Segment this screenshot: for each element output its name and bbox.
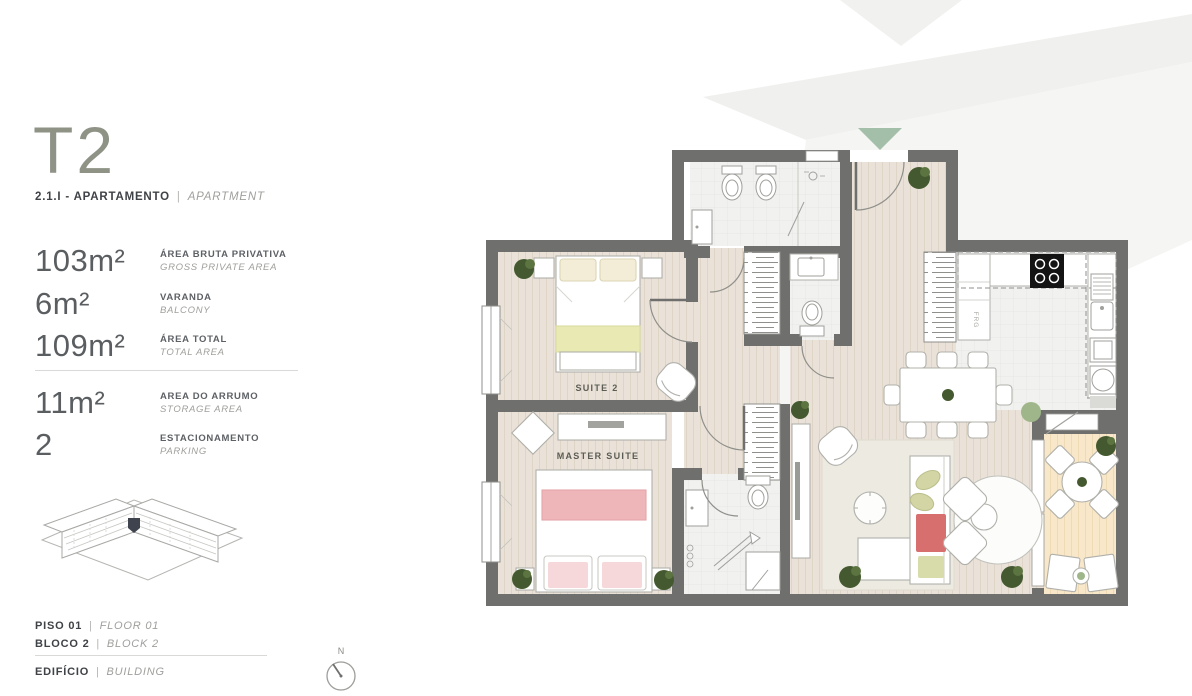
block-pt: BLOCO 2: [35, 638, 90, 650]
compass-needle: [333, 664, 341, 676]
spec-label-en: GROSS PRIVATE AREA: [160, 262, 287, 273]
nightstand: [534, 258, 554, 278]
entrance-arrow-icon: [858, 128, 902, 150]
pillow-pink: [602, 562, 642, 588]
bathroom2-basin: [798, 258, 824, 276]
chaise: [858, 538, 912, 580]
fridge-label: FRG: [972, 312, 979, 329]
brochure-page: { "colors": { "wall": "#6f6f6e", "wood_f…: [0, 0, 1192, 696]
dining-chair: [937, 422, 957, 438]
wardrobe-corridor-upper: [744, 252, 780, 334]
dining-chair: [906, 352, 926, 368]
storage-closet: [746, 552, 780, 590]
bathroom1-sink: [692, 210, 712, 244]
floor-separator: |: [86, 620, 96, 632]
spec-label-pt: ÁREA TOTAL: [160, 334, 227, 345]
spec-parking: 2 ESTACIONAMENTO PARKING: [35, 430, 335, 460]
kitchen-end-panel: [1090, 396, 1116, 408]
spec-value: 2: [35, 430, 160, 460]
dining-chair: [884, 385, 900, 405]
dining-chair: [937, 352, 957, 368]
spec-label-pt: VARANDA: [160, 292, 212, 303]
wardrobe-hall: [924, 252, 956, 342]
dining-chair: [906, 422, 926, 438]
bidet: [722, 166, 742, 200]
spec-label-pt: AREA DO ARRUMO: [160, 391, 258, 402]
tv: [795, 462, 800, 520]
kitchen-sink: [1091, 274, 1113, 330]
master-suite-label: MASTER SUITE: [557, 451, 640, 461]
spec-label-en: STORAGE AREA: [160, 404, 258, 415]
building-en: BUILDING: [106, 666, 164, 678]
pillow: [560, 259, 596, 281]
subtitle-separator: |: [174, 191, 184, 203]
cushion-green: [918, 556, 944, 578]
dining-chair: [968, 422, 988, 438]
wardrobe-corridor-lower: [744, 404, 780, 480]
cushion-red: [916, 514, 946, 552]
subtitle-en: APARTMENT: [188, 191, 265, 203]
toilet: [756, 166, 776, 200]
building-locator-illustration: [38, 492, 248, 612]
spec-label-en: PARKING: [160, 446, 259, 457]
footer-divider: [35, 655, 267, 656]
entrance-door-opening: [850, 150, 908, 162]
spec-total-area: 109m² ÁREA TOTAL TOTAL AREA: [35, 331, 335, 361]
compass: N: [313, 642, 373, 696]
bathroom1-window: [806, 151, 838, 161]
bed-foot-bench: [560, 352, 636, 370]
specs-divider: [35, 370, 298, 371]
spec-label-en: BALCONY: [160, 305, 212, 316]
building-caption: EDIFÍCIO | BUILDING: [35, 666, 165, 678]
tv-console: [792, 424, 810, 558]
hob: [1030, 254, 1064, 288]
spec-label-pt: ESTACIONAMENTO: [160, 433, 259, 444]
spec-balcony: 6m² VARANDA BALCONY: [35, 289, 335, 319]
typology-title: T2: [33, 112, 116, 188]
floor-en: FLOOR 01: [100, 620, 160, 632]
coffee-table: [854, 492, 886, 524]
compass-north-label: N: [338, 646, 345, 656]
dresser-handle: [588, 421, 624, 428]
spec-label-pt: ÁREA BRUTA PRIVATIVA: [160, 249, 287, 260]
spec-value: 6m²: [35, 289, 160, 319]
spec-gross-private-area: 103m² ÁREA BRUTA PRIVATIVA GROSS PRIVATE…: [35, 246, 335, 276]
pillow-pink: [548, 562, 588, 588]
building-separator: |: [93, 666, 103, 678]
hall-floor: [852, 252, 924, 345]
toilet: [800, 301, 824, 336]
spec-storage-area: 11m² AREA DO ARRUMO STORAGE AREA: [35, 388, 335, 418]
block-en: BLOCK 2: [107, 638, 159, 650]
bed-runner-green: [556, 326, 640, 352]
dining-chair: [996, 385, 1012, 405]
apartment-subtitle: 2.1.I - APARTAMENTO | APARTMENT: [35, 191, 265, 203]
spec-value: 11m²: [35, 388, 160, 418]
spec-label-en: TOTAL AREA: [160, 347, 227, 358]
floor-plan: FRG: [480, 125, 1140, 615]
spec-value: 103m²: [35, 246, 160, 276]
watermark-top-v: [840, 0, 962, 46]
building-pt: EDIFÍCIO: [35, 666, 89, 678]
toilet: [746, 476, 770, 509]
floor-pt: PISO 01: [35, 620, 82, 632]
spec-value: 109m²: [35, 331, 160, 361]
bed-runner-pink: [542, 490, 646, 520]
block-separator: |: [93, 638, 103, 650]
dishwasher: [1090, 338, 1116, 362]
block-location: BLOCO 2 | BLOCK 2: [35, 638, 159, 650]
master-suite-room: [512, 412, 670, 592]
dining-chair: [968, 352, 988, 368]
pillow: [600, 259, 636, 281]
entrance-hall-floor: [852, 162, 946, 252]
subtitle-pt: 2.1.I - APARTAMENTO: [35, 191, 170, 203]
suite2-label: SUITE 2: [575, 383, 618, 393]
compass-center-dot: [340, 675, 343, 678]
washing-machine: [1090, 366, 1116, 394]
nightstand: [642, 258, 662, 278]
floor-location: PISO 01 | FLOOR 01: [35, 620, 159, 632]
